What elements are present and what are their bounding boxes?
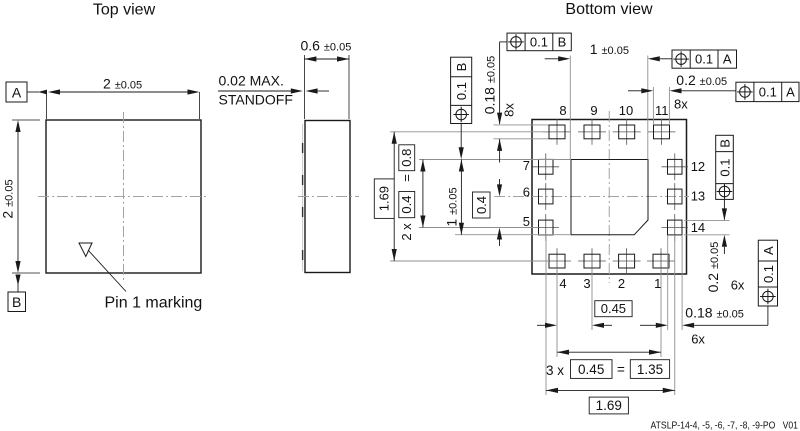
svg-text:14: 14: [691, 220, 705, 235]
svg-text:A: A: [761, 246, 776, 255]
svg-text:Top view: Top view: [93, 2, 156, 19]
svg-text:=: =: [399, 174, 414, 182]
svg-text:0.8: 0.8: [399, 149, 414, 167]
svg-text:STANDOFF: STANDOFF: [219, 92, 293, 108]
svg-text:0.45: 0.45: [601, 301, 626, 316]
svg-text:12: 12: [691, 159, 705, 174]
svg-text:13: 13: [691, 189, 705, 204]
svg-text:1.69: 1.69: [596, 398, 622, 413]
svg-text:10: 10: [619, 103, 633, 118]
svg-text:A: A: [786, 84, 795, 99]
svg-text:0.4: 0.4: [474, 196, 489, 214]
svg-text:=: =: [617, 362, 625, 377]
svg-text:8: 8: [559, 103, 566, 118]
svg-text:2 x: 2 x: [399, 223, 414, 241]
svg-text:ATSLP-14-4, -5, -6, -7, -8, -9: ATSLP-14-4, -5, -6, -7, -8, -9-PO V01: [651, 420, 799, 431]
svg-text:9: 9: [590, 103, 597, 118]
svg-text:B: B: [12, 294, 21, 310]
svg-text:3: 3: [583, 276, 590, 291]
svg-text:0.1: 0.1: [454, 82, 469, 100]
svg-text:A: A: [12, 85, 22, 101]
svg-text:1: 1: [654, 276, 661, 291]
svg-text:8x: 8x: [674, 97, 688, 112]
svg-text:7: 7: [523, 158, 530, 173]
svg-text:B: B: [558, 34, 567, 49]
svg-text:0.1: 0.1: [530, 34, 548, 49]
svg-text:A: A: [723, 52, 732, 67]
svg-text:5: 5: [523, 214, 530, 229]
svg-text:0.1: 0.1: [695, 52, 713, 67]
svg-text:B: B: [717, 139, 732, 148]
svg-text:0.1: 0.1: [759, 84, 777, 99]
svg-text:0.1: 0.1: [717, 159, 732, 177]
svg-text:8x: 8x: [502, 103, 517, 117]
svg-text:0.1: 0.1: [761, 265, 776, 283]
svg-text:6x: 6x: [731, 278, 745, 293]
svg-text:Pin 1 marking: Pin 1 marking: [105, 295, 203, 312]
svg-text:1.35: 1.35: [637, 362, 663, 377]
svg-text:2: 2: [618, 276, 625, 291]
svg-text:11: 11: [655, 103, 669, 118]
svg-text:6x: 6x: [691, 332, 705, 347]
svg-text:Bottom view: Bottom view: [565, 1, 653, 18]
svg-text:6: 6: [523, 185, 530, 200]
svg-text:3 x: 3 x: [546, 363, 564, 378]
svg-text:0.4: 0.4: [399, 196, 414, 214]
svg-text:B: B: [454, 63, 469, 72]
svg-text:1.69: 1.69: [377, 186, 392, 211]
svg-text:0.45: 0.45: [578, 362, 604, 377]
svg-text:4: 4: [559, 276, 566, 291]
svg-text:0.02 MAX.: 0.02 MAX.: [219, 73, 284, 89]
